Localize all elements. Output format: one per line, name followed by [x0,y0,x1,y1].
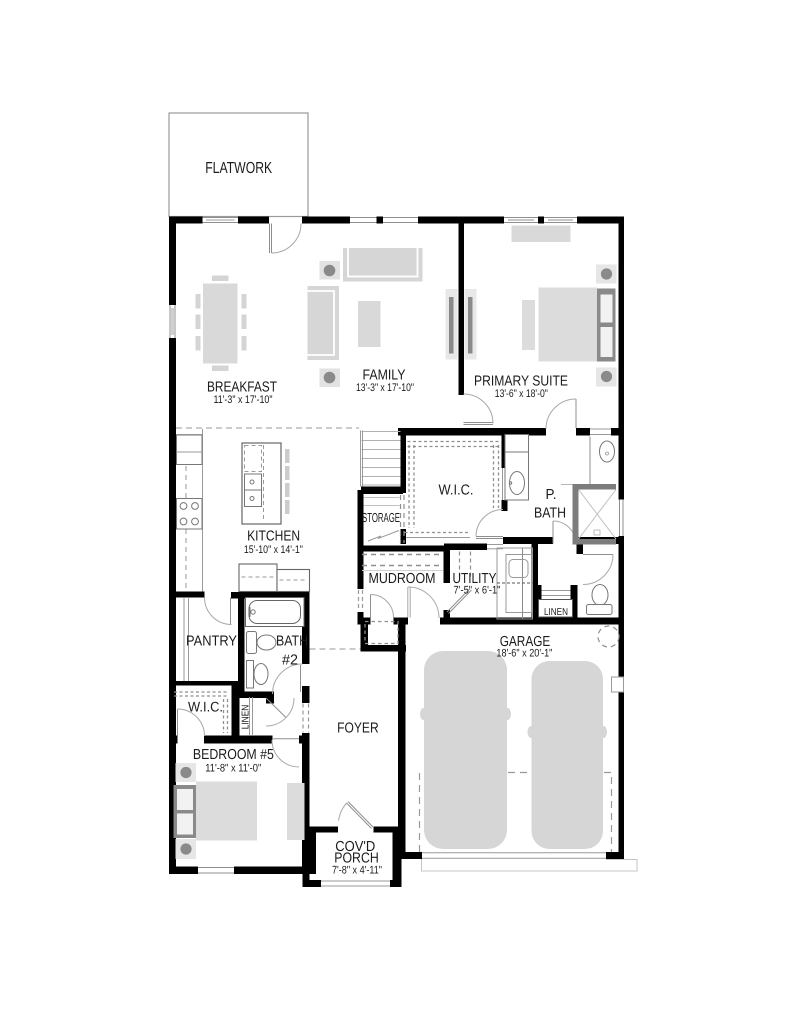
svg-text:BEDROOM #5: BEDROOM #5 [193,747,274,763]
svg-text:11'-8" x 11'-0": 11'-8" x 11'-0" [205,763,261,775]
svg-text:7'-8" x 4'-11": 7'-8" x 4'-11" [332,865,382,877]
svg-text:13'-6" x 18'-0": 13'-6" x 18'-0" [495,388,548,400]
svg-text:LINEN: LINEN [544,607,568,618]
svg-text:W.I.C.: W.I.C. [439,483,474,499]
svg-text:FOYER: FOYER [337,720,379,736]
svg-text:KITCHEN: KITCHEN [247,529,300,545]
svg-text:#2: #2 [282,653,298,669]
svg-text:PANTRY: PANTRY [186,634,237,650]
svg-text:LINEN: LINEN [241,705,252,730]
svg-text:STORAGE: STORAGE [362,510,400,525]
svg-text:W.I.C.: W.I.C. [188,699,223,715]
svg-text:BATH: BATH [534,506,566,522]
svg-text:BATH: BATH [276,634,308,650]
svg-text:11'-3" x 17'-10": 11'-3" x 17'-10" [214,394,273,406]
svg-text:MUDROOM: MUDROOM [369,571,436,587]
svg-text:13'-3" x 17'-10": 13'-3" x 17'-10" [356,382,414,394]
svg-text:15'-10" x 14'-1": 15'-10" x 14'-1" [244,544,303,556]
svg-text:7'-5" x 6'-1": 7'-5" x 6'-1" [454,585,501,597]
svg-text:18'-6" x 20'-1": 18'-6" x 20'-1" [496,648,552,660]
svg-text:FLATWORK: FLATWORK [205,160,272,177]
svg-text:P.: P. [546,487,557,503]
